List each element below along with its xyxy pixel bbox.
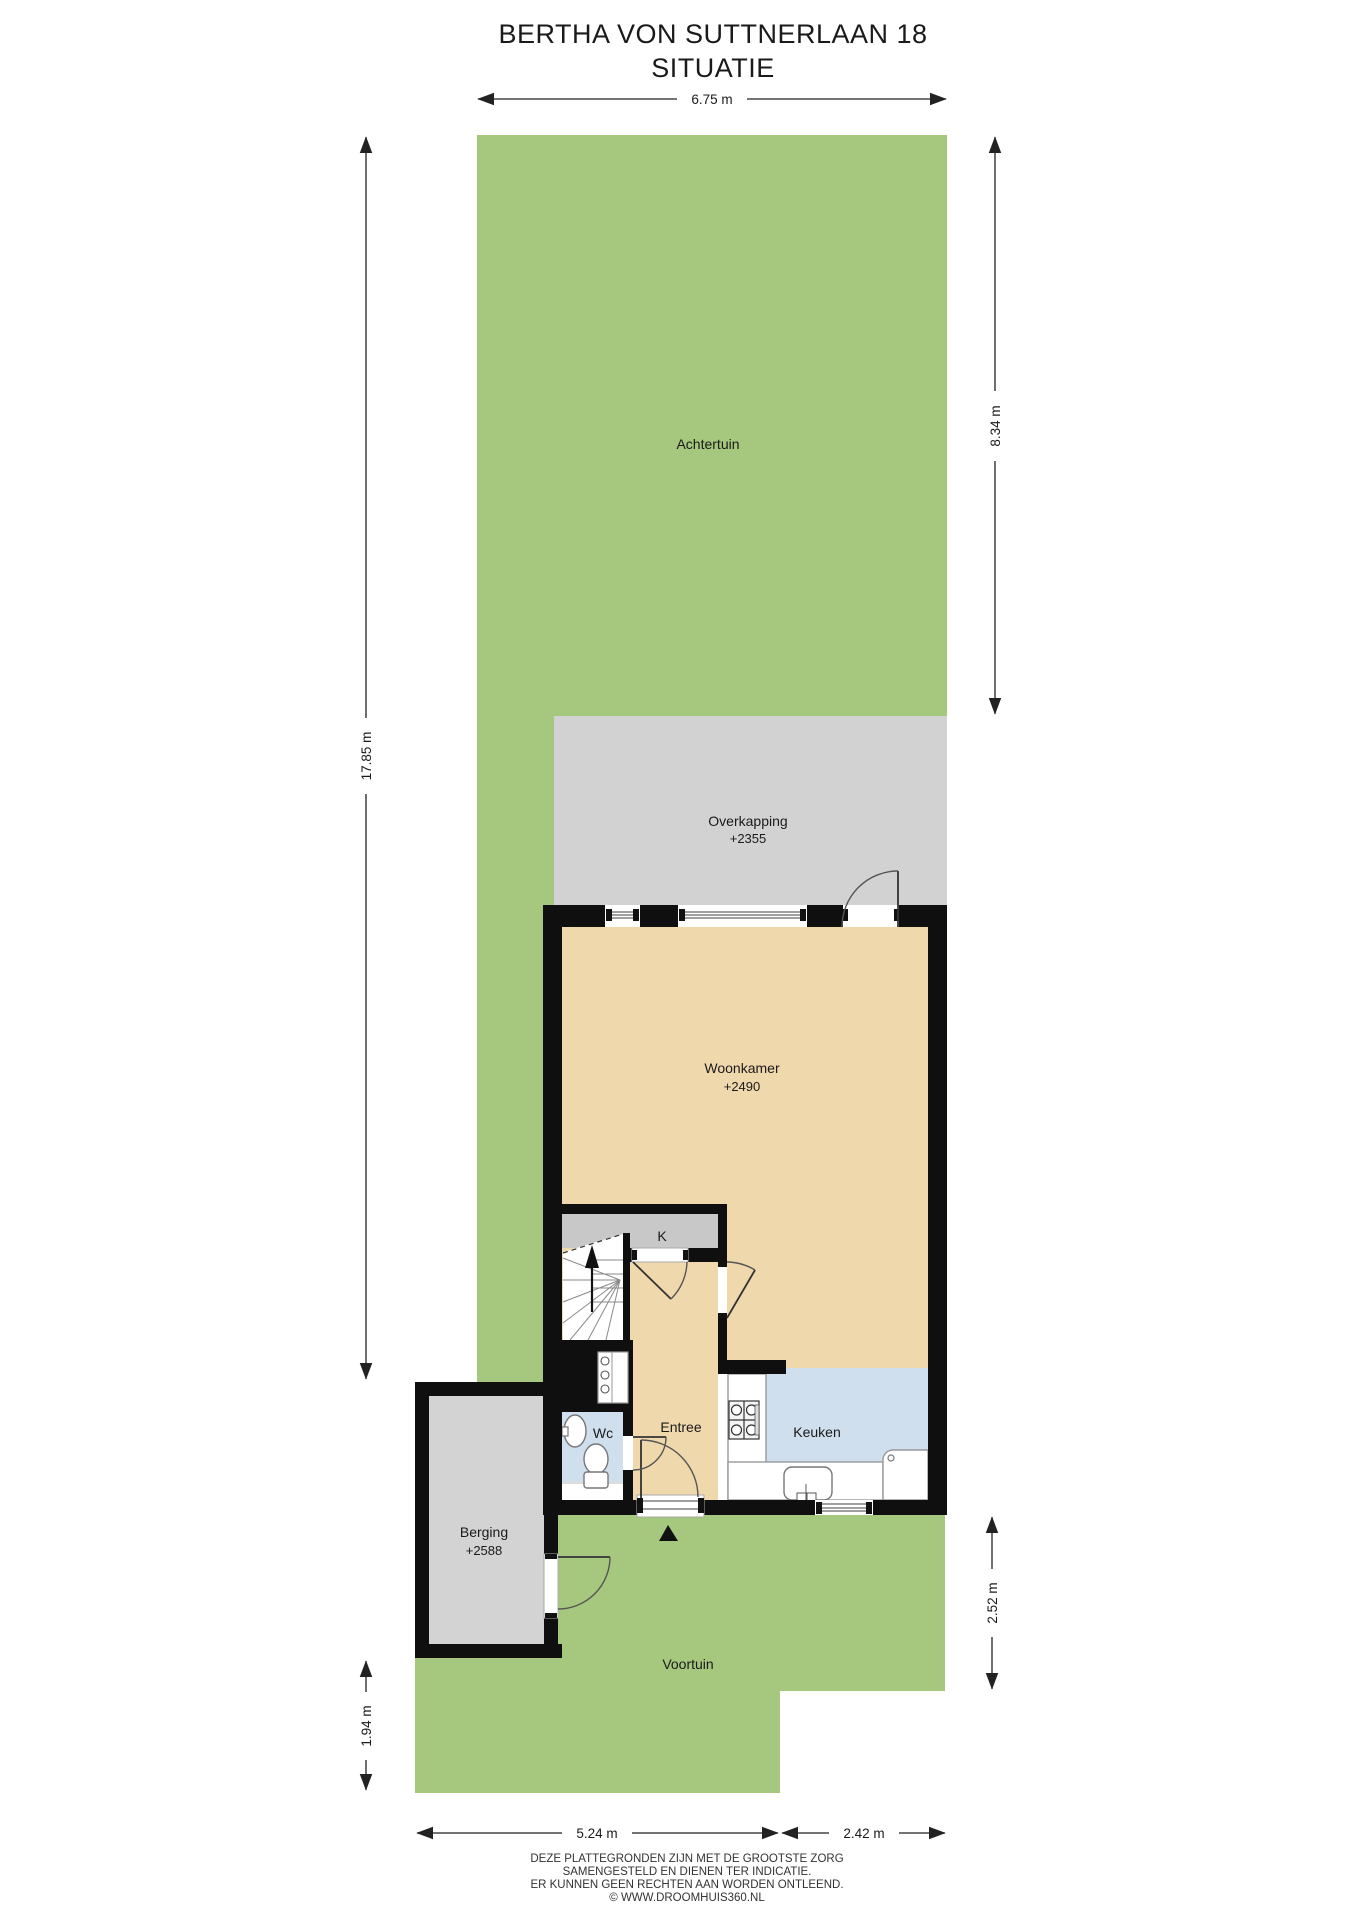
- dim-bottom-left-width: 5.24 m: [417, 1824, 778, 1841]
- toilet-icon: [584, 1444, 608, 1488]
- page-subtitle: SITUATIE: [651, 53, 775, 83]
- stove-icon: [729, 1401, 759, 1439]
- footer-line-4: © WWW.DROOMHUIS360.NL: [609, 1892, 765, 1904]
- dim-top-width: 6.75 m: [478, 90, 946, 107]
- woonkamer-label: Woonkamer: [704, 1060, 780, 1076]
- dim-right-upper: 8.34 m: [986, 137, 1004, 714]
- window-top-small: [605, 905, 640, 927]
- dim-right-lower: 2.52 m: [983, 1517, 1001, 1689]
- footer-line-2: SAMENGESTELD EN DIENEN TER INDICATIE.: [563, 1866, 812, 1878]
- woonkamer-elevation: +2490: [724, 1079, 761, 1094]
- entree-label: Entree: [660, 1419, 701, 1435]
- kast-label: K: [657, 1228, 667, 1244]
- dim-left-total: 17.85 m: [357, 137, 375, 1379]
- footer-line-3: ER KUNNEN GEEN RECHTEN AAN WORDEN ONTLEE…: [530, 1879, 843, 1891]
- keuken-region: [766, 1368, 928, 1462]
- dim-bottom-right-label: 2.42 m: [843, 1826, 884, 1841]
- dim-right-lower-label: 2.52 m: [985, 1582, 1000, 1623]
- keuken-label: Keuken: [793, 1424, 840, 1440]
- kitchen-sink-icon: [784, 1467, 832, 1501]
- title: BERTHA VON SUTTNERLAAN 18 SITUATIE: [498, 19, 927, 83]
- berging-region: [429, 1396, 544, 1644]
- kitchen-counter-right: [883, 1450, 928, 1500]
- window-top-large: [678, 905, 807, 927]
- dim-left-lower: 1.94 m: [357, 1661, 375, 1790]
- dim-bottom-left-label: 5.24 m: [576, 1826, 617, 1841]
- window-kitchen: [815, 1500, 873, 1515]
- overkapping-region: [554, 716, 947, 905]
- voortuin-label: Voortuin: [662, 1656, 713, 1672]
- berging-elevation: +2588: [466, 1543, 503, 1558]
- overkapping-label: Overkapping: [708, 813, 787, 829]
- dim-top-width-label: 6.75 m: [691, 92, 732, 107]
- wc-label: Wc: [593, 1425, 613, 1441]
- footer-disclaimer: DEZE PLATTEGRONDEN ZIJN MET DE GROOTSTE …: [530, 1853, 843, 1904]
- side-garden-strip: [477, 716, 554, 1382]
- footer-line-1: DEZE PLATTEGRONDEN ZIJN MET DE GROOTSTE …: [530, 1853, 843, 1865]
- dim-left-total-label: 17.85 m: [359, 732, 374, 781]
- floorplan-drawing: BERTHA VON SUTTNERLAAN 18 SITUATIE Achte…: [0, 0, 1358, 1920]
- kast-region: [562, 1214, 718, 1248]
- dim-bottom-right-width: 2.42 m: [782, 1824, 945, 1841]
- overkapping-elevation: +2355: [730, 831, 767, 846]
- dim-left-lower-label: 1.94 m: [359, 1705, 374, 1746]
- floorplan-page: BERTHA VON SUTTNERLAAN 18 SITUATIE Achte…: [0, 0, 1358, 1920]
- page-title: BERTHA VON SUTTNERLAAN 18: [498, 19, 927, 49]
- dim-right-upper-label: 8.34 m: [988, 405, 1003, 446]
- achtertuin-region: [477, 135, 947, 716]
- stairs: [563, 1234, 623, 1340]
- achtertuin-label: Achtertuin: [676, 436, 739, 452]
- berging-label: Berging: [460, 1524, 508, 1540]
